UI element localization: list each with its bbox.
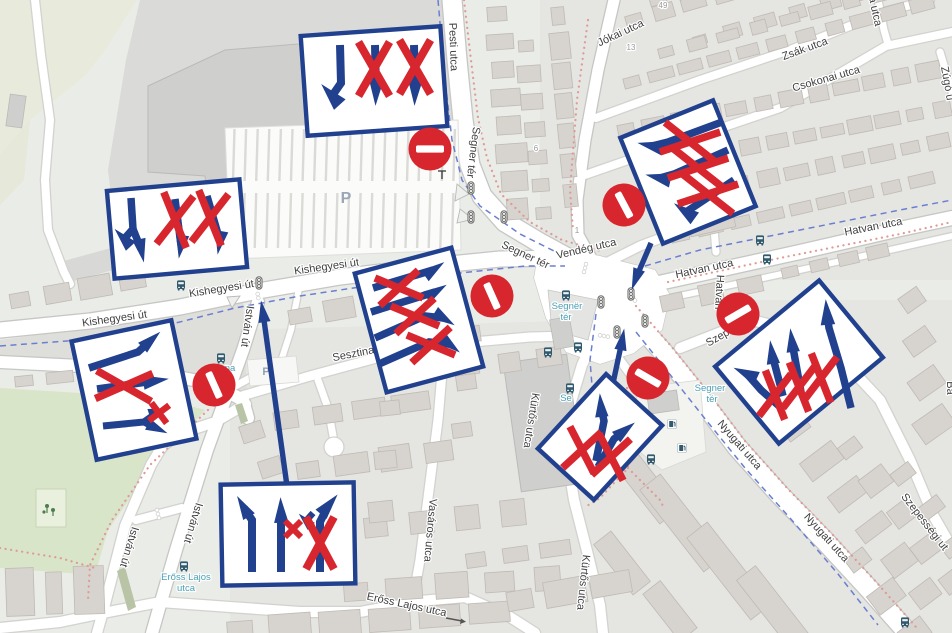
svg-text:Ba: Ba [944, 381, 952, 395]
svg-text:13: 13 [627, 43, 636, 52]
svg-text:6: 6 [534, 144, 539, 153]
svg-text:Pesti utca: Pesti utca [446, 23, 460, 73]
svg-text:Segner: Segner [695, 383, 726, 394]
svg-text:tér: tér [560, 312, 571, 323]
svg-text:Erőss Lajos: Erőss Lajos [161, 572, 211, 583]
svg-text:1: 1 [575, 226, 580, 235]
svg-text:49: 49 [659, 1, 668, 10]
svg-text:Se: Se [560, 393, 572, 404]
svg-text:utca: utca [177, 583, 196, 594]
svg-text:tér: tér [706, 394, 717, 405]
svg-text:P: P [341, 190, 352, 207]
svg-text:Segnër: Segnër [552, 301, 583, 312]
